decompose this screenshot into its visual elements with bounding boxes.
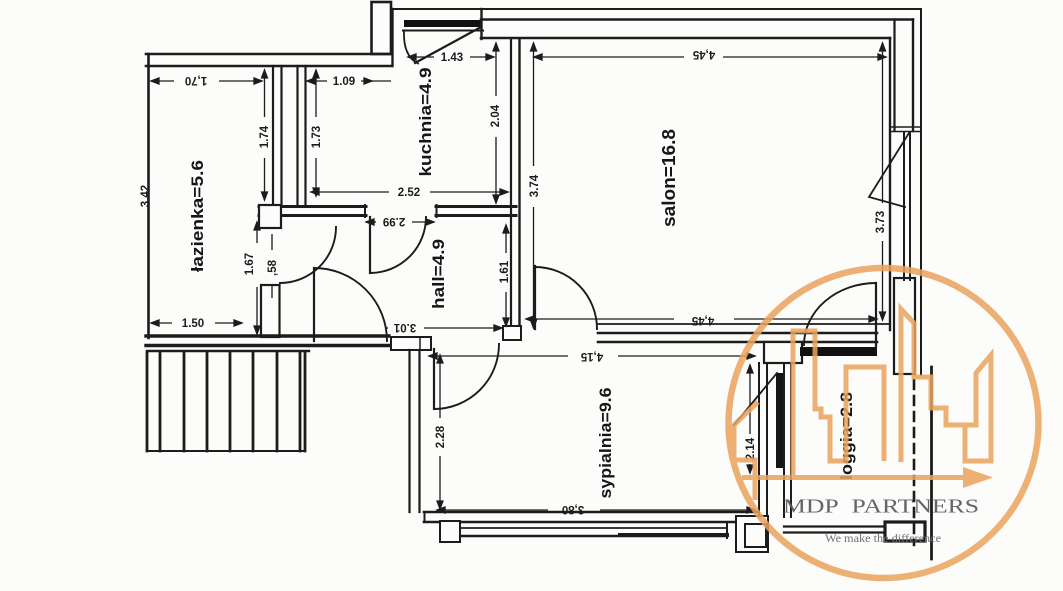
svg-text:1.50: 1.50 (182, 318, 204, 330)
svg-text:łazienka=5.6: łazienka=5.6 (188, 160, 207, 272)
svg-text:2.28: 2.28 (435, 425, 447, 448)
svg-text:kuchnia=4.9: kuchnia=4.9 (416, 68, 435, 177)
svg-text:,58: ,58 (267, 259, 279, 276)
svg-text:2.99: 2.99 (383, 215, 405, 227)
svg-text:3.01: 3.01 (393, 321, 416, 333)
svg-text:1.43: 1.43 (441, 52, 463, 64)
svg-text:3.42: 3.42 (140, 185, 152, 207)
svg-text:1.09: 1.09 (333, 76, 355, 88)
svg-text:2.04: 2.04 (490, 104, 502, 127)
svg-text:3,80: 3,80 (562, 503, 584, 515)
svg-text:1.74: 1.74 (259, 125, 271, 148)
svg-text:1.61: 1.61 (499, 260, 511, 283)
svg-text:4,15: 4,15 (580, 350, 603, 362)
svg-text:salon=16.8: salon=16.8 (659, 129, 679, 227)
svg-text:MDP PARTNERS: MDP PARTNERS (783, 497, 979, 518)
svg-text:3.74: 3.74 (529, 174, 541, 197)
svg-text:4,45: 4,45 (691, 314, 714, 326)
svg-text:4,45: 4,45 (692, 48, 715, 60)
svg-text:2.52: 2.52 (398, 187, 420, 199)
svg-text:1.67: 1.67 (244, 253, 256, 275)
svg-text:1,70: 1,70 (185, 74, 207, 86)
svg-text:sypialnia=9.6: sypialnia=9.6 (596, 388, 615, 499)
svg-text:We make the difference: We make the difference (825, 531, 941, 545)
svg-text:1.73: 1.73 (311, 126, 323, 148)
svg-text:2.14: 2.14 (745, 437, 757, 460)
svg-text:hall=4.9: hall=4.9 (429, 239, 448, 309)
svg-text:3.73: 3.73 (875, 211, 887, 233)
